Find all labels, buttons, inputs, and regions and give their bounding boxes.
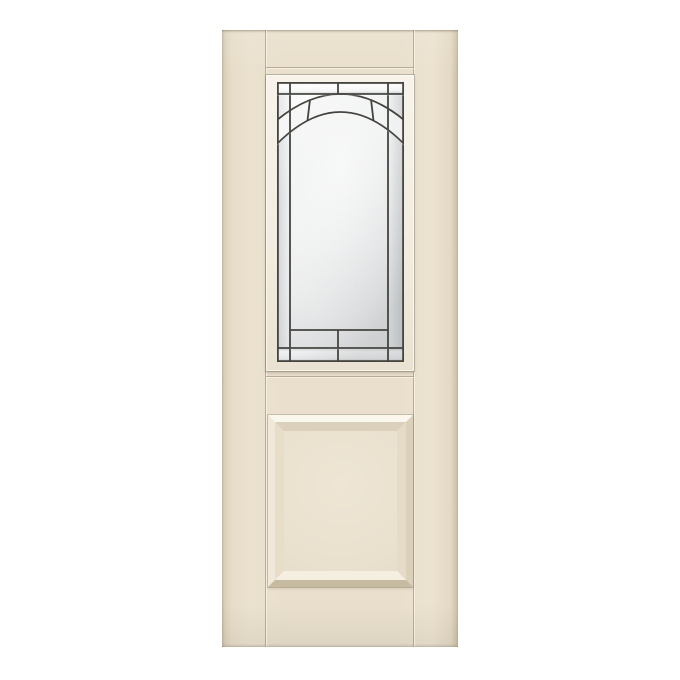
top-rail-groove (266, 67, 414, 69)
raised-panel (268, 415, 413, 587)
panel-field (284, 431, 397, 571)
decorative-glass (277, 82, 404, 362)
glass-lite-frame (266, 75, 414, 371)
lock-rail-groove (266, 376, 414, 378)
door-slab (222, 30, 458, 647)
product-image (0, 0, 680, 680)
